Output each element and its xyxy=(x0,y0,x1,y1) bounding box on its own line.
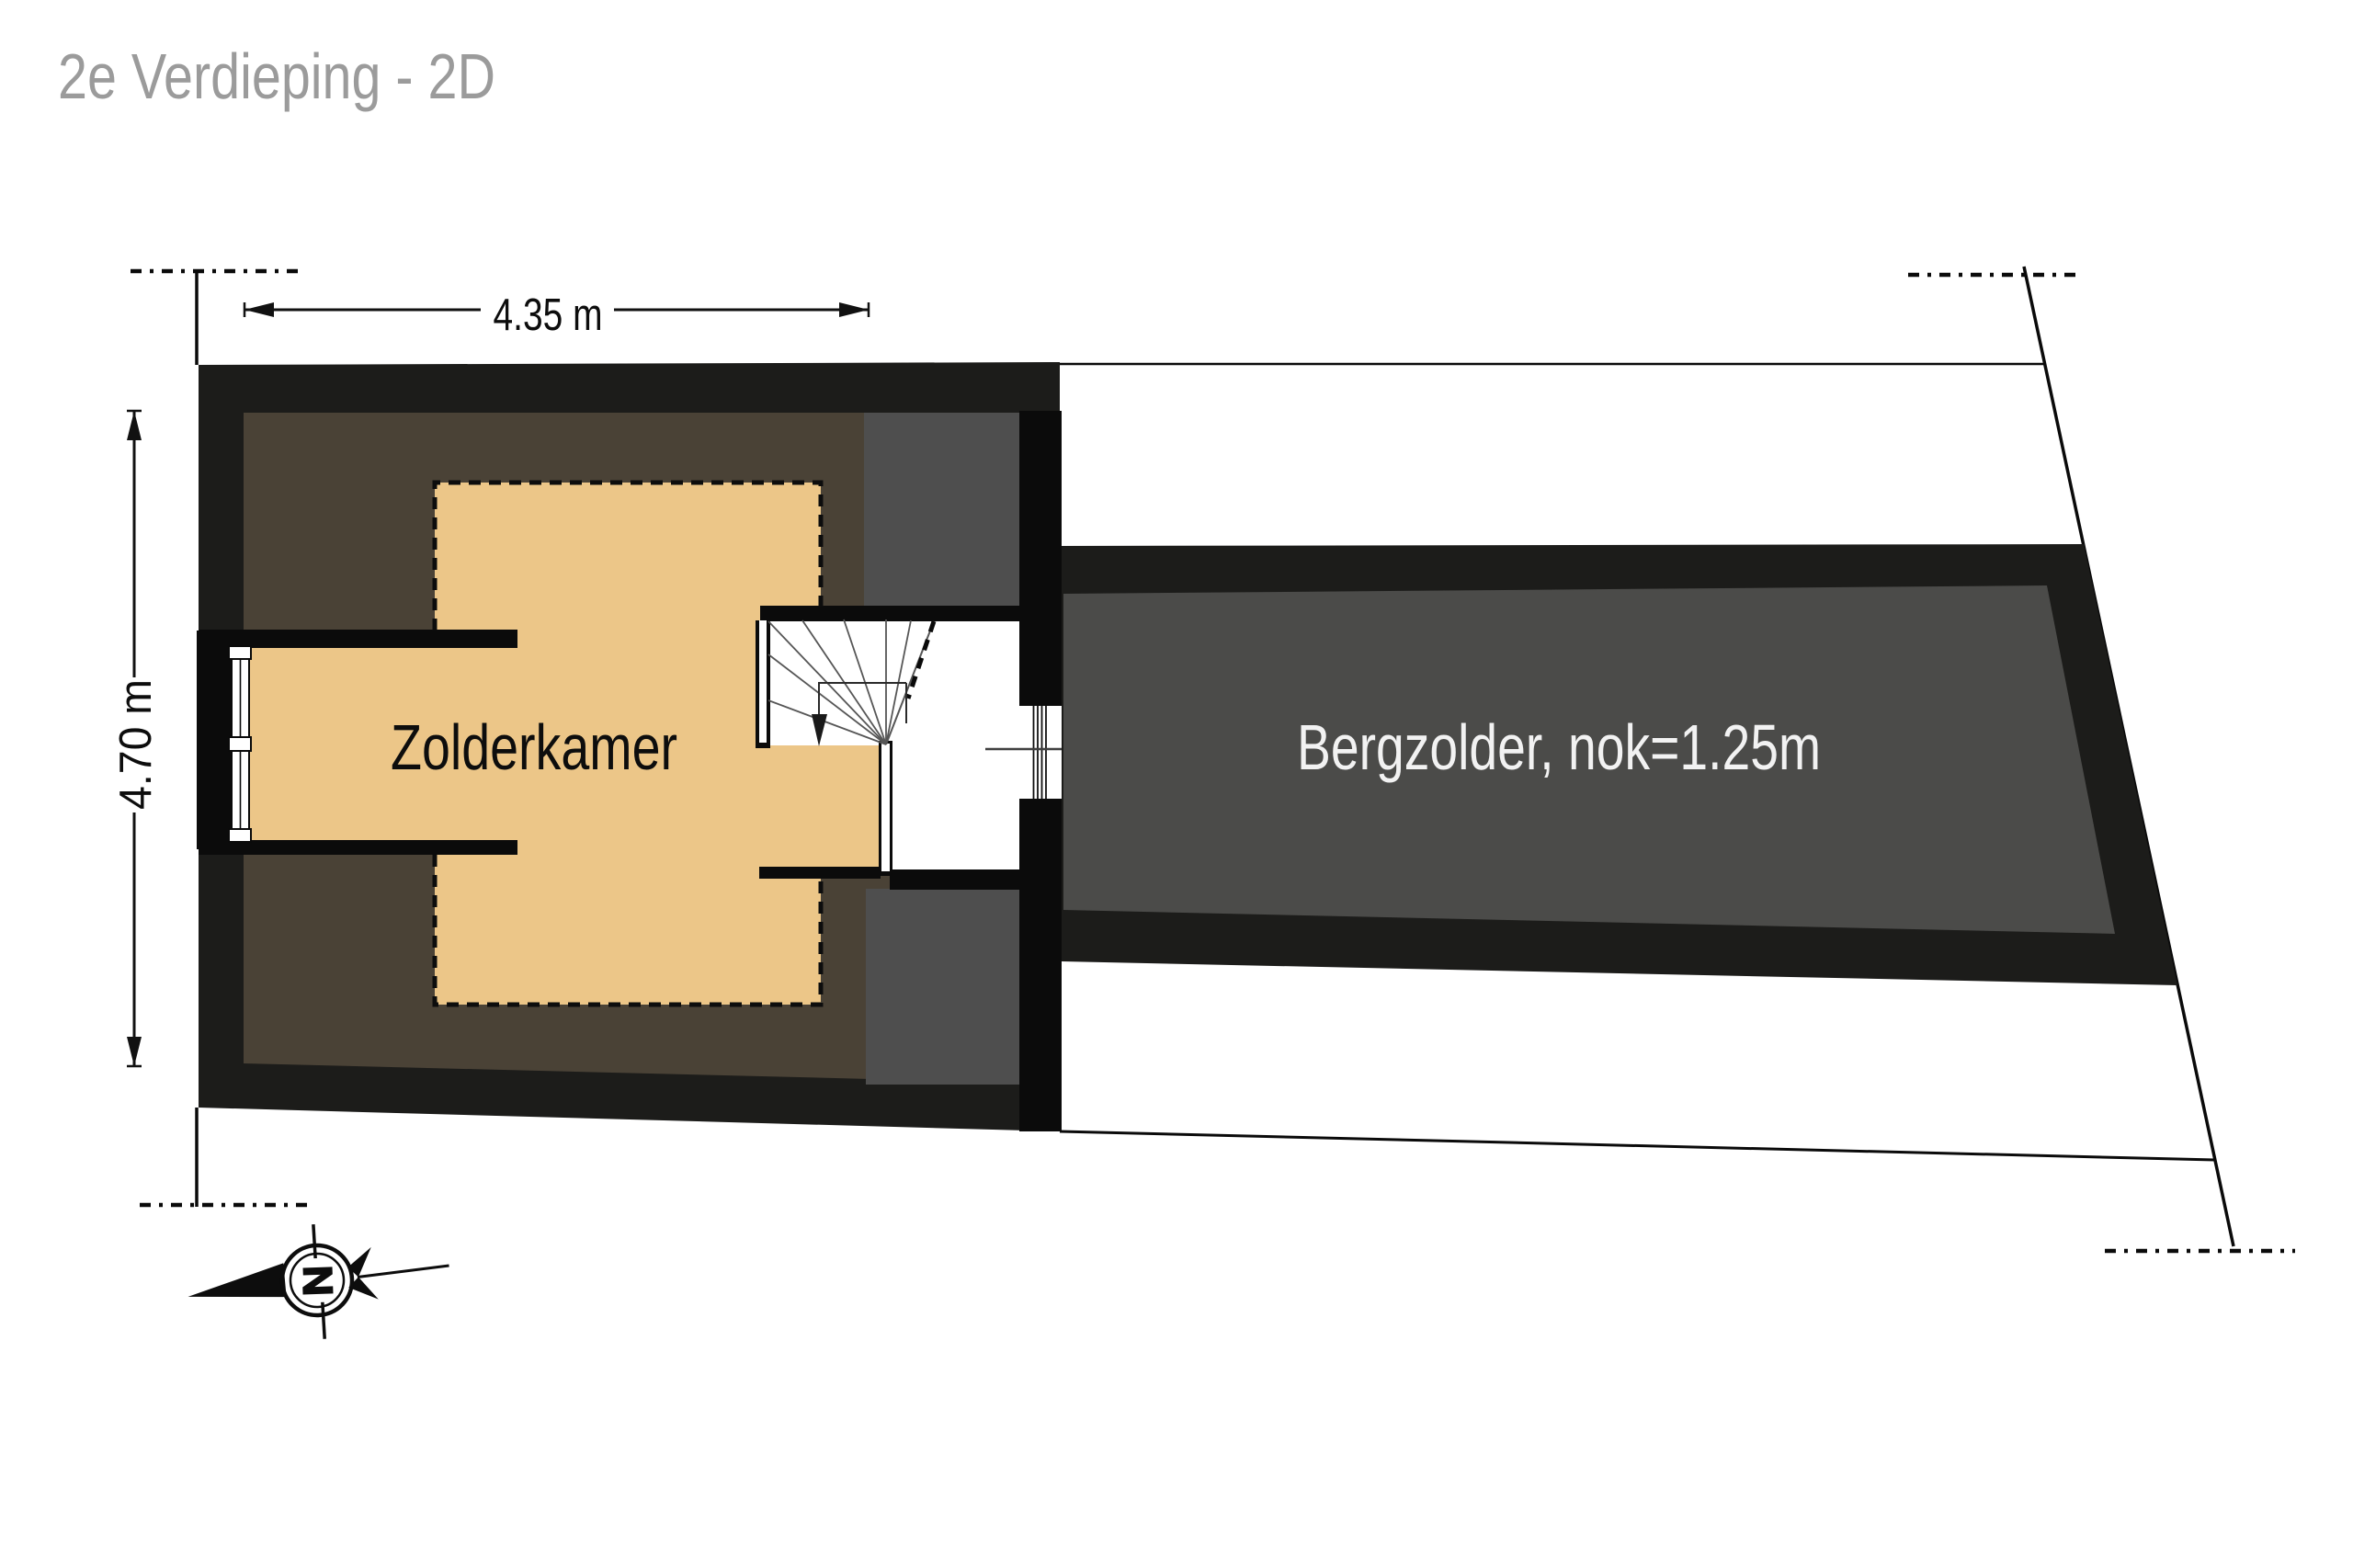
svg-text:Bergzolder, nok=1.25m: Bergzolder, nok=1.25m xyxy=(1297,711,1821,783)
svg-text:Zolderkamer: Zolderkamer xyxy=(391,711,677,783)
svg-text:2e Verdieping - 2D: 2e Verdieping - 2D xyxy=(58,40,495,112)
svg-text:4.35 m: 4.35 m xyxy=(494,290,603,340)
svg-text:4.70 m: 4.70 m xyxy=(111,679,161,810)
